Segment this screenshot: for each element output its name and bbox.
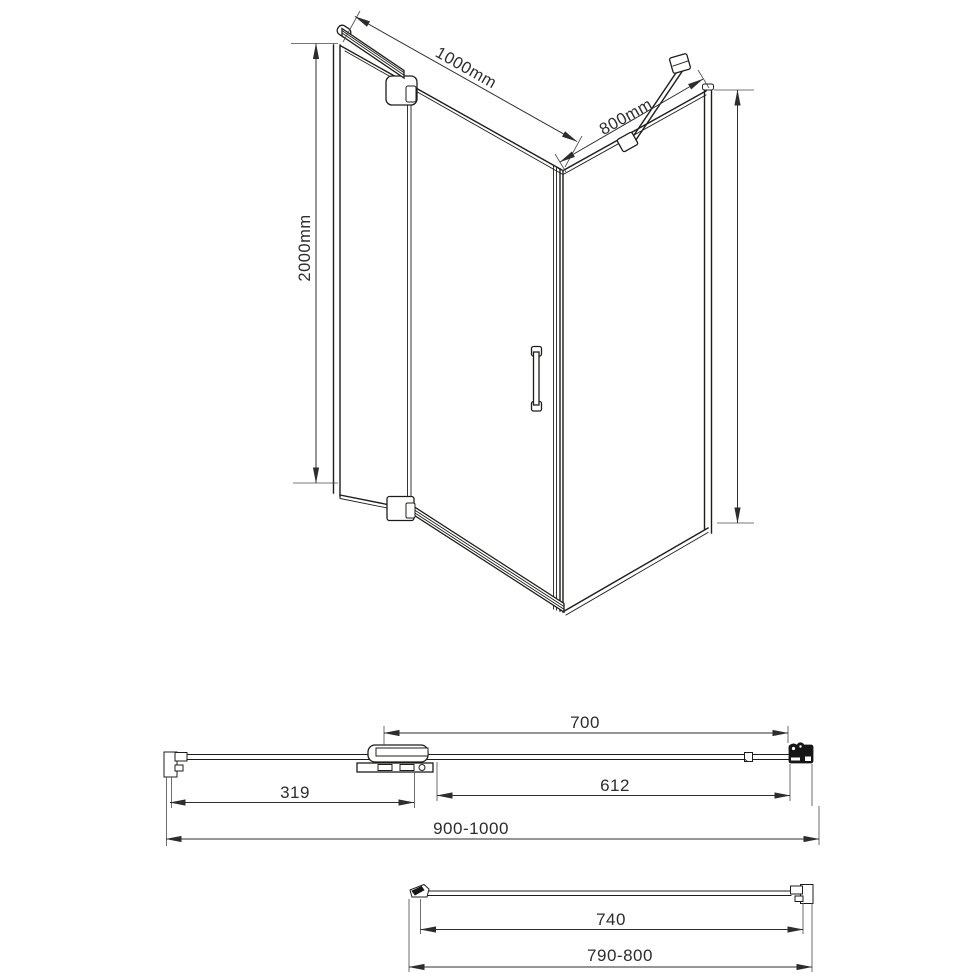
dim-740: 740 bbox=[421, 910, 804, 930]
fixed-door-divider bbox=[408, 84, 412, 502]
dim-790-800: 790-800 bbox=[409, 946, 812, 967]
door-plan-hinge bbox=[357, 745, 433, 772]
top-hinge bbox=[386, 76, 417, 105]
door-handle bbox=[532, 347, 542, 412]
height-dimension-label: 2000mm bbox=[296, 214, 314, 281]
dim-700-label: 700 bbox=[570, 713, 600, 732]
width-dimension: 1000mm bbox=[343, 11, 582, 167]
depth-dimension: 800mm bbox=[555, 70, 709, 172]
left-support-bar bbox=[335, 23, 404, 78]
corner-profile bbox=[554, 165, 564, 612]
right-wall-profile bbox=[703, 84, 714, 533]
side-panel-bottom-edge bbox=[564, 528, 709, 615]
dim-319-label: 319 bbox=[280, 783, 310, 802]
dim-700: 700 bbox=[384, 713, 788, 733]
dim-900-1000-label: 900-1000 bbox=[433, 819, 509, 838]
right-support-bar bbox=[617, 53, 691, 152]
width-dimension-label: 1000mm bbox=[432, 44, 499, 93]
left-wall-profile bbox=[334, 45, 341, 497]
door-panel-plan-view: 700 612 319 900-1000 bbox=[164, 713, 819, 846]
dim-740-label: 740 bbox=[596, 910, 626, 929]
side-height-dimension bbox=[714, 90, 754, 523]
dim-790-800-label: 790-800 bbox=[587, 946, 653, 965]
side-plan-corner-connector bbox=[410, 885, 429, 898]
dim-612: 612 bbox=[437, 776, 790, 796]
bottom-hinge bbox=[387, 497, 415, 521]
door-plan-wall-profile bbox=[164, 752, 187, 777]
isometric-view: 2000mm 1000mm 800mm bbox=[291, 11, 754, 615]
dim-319: 319 bbox=[170, 783, 414, 803]
side-plan-wall-profile bbox=[791, 885, 814, 904]
dim-612-label: 612 bbox=[600, 776, 630, 795]
drawing-canvas: 2000mm 1000mm 800mm bbox=[0, 0, 976, 976]
height-dimension: 2000mm bbox=[291, 44, 338, 484]
door-bottom-rail bbox=[413, 506, 564, 612]
door-plan-handle bbox=[745, 753, 753, 762]
fixed-panel-bottom-edge bbox=[340, 495, 390, 509]
shower-enclosure-technical-drawing: 2000mm 1000mm 800mm bbox=[0, 0, 976, 976]
door-plan-glass bbox=[186, 755, 790, 760]
door-plan-corner-mechanism bbox=[789, 743, 813, 763]
side-plan-glass bbox=[427, 891, 791, 896]
dim-900-1000: 900-1000 bbox=[166, 819, 819, 839]
side-panel-plan-view: 740 790-800 bbox=[409, 885, 813, 973]
